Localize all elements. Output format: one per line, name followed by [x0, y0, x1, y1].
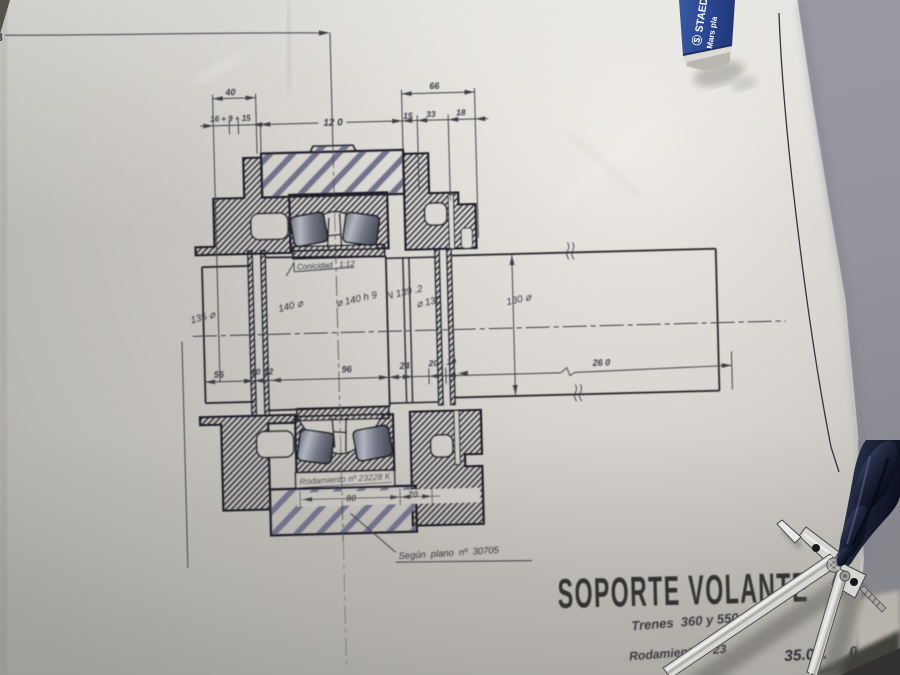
svg-text:10: 10	[446, 357, 456, 367]
svg-text:33: 33	[426, 109, 436, 119]
svg-text:20: 20	[407, 490, 418, 500]
svg-text:12: 12	[264, 366, 274, 376]
svg-text:96: 96	[342, 364, 353, 374]
svg-text:56: 56	[214, 370, 225, 380]
svg-text:40: 40	[224, 87, 235, 97]
svg-text:26 0: 26 0	[592, 358, 611, 368]
svg-text:15: 15	[403, 111, 413, 121]
svg-text:16 + 9 + 15: 16 + 9 + 15	[210, 114, 251, 124]
svg-text:80: 80	[346, 493, 356, 503]
svg-text:18: 18	[456, 107, 466, 117]
svg-text:10: 10	[251, 367, 261, 377]
svg-text:12 0: 12 0	[323, 117, 343, 129]
svg-text:24: 24	[399, 361, 410, 371]
svg-text:20: 20	[427, 358, 438, 368]
svg-text:66: 66	[429, 81, 440, 91]
